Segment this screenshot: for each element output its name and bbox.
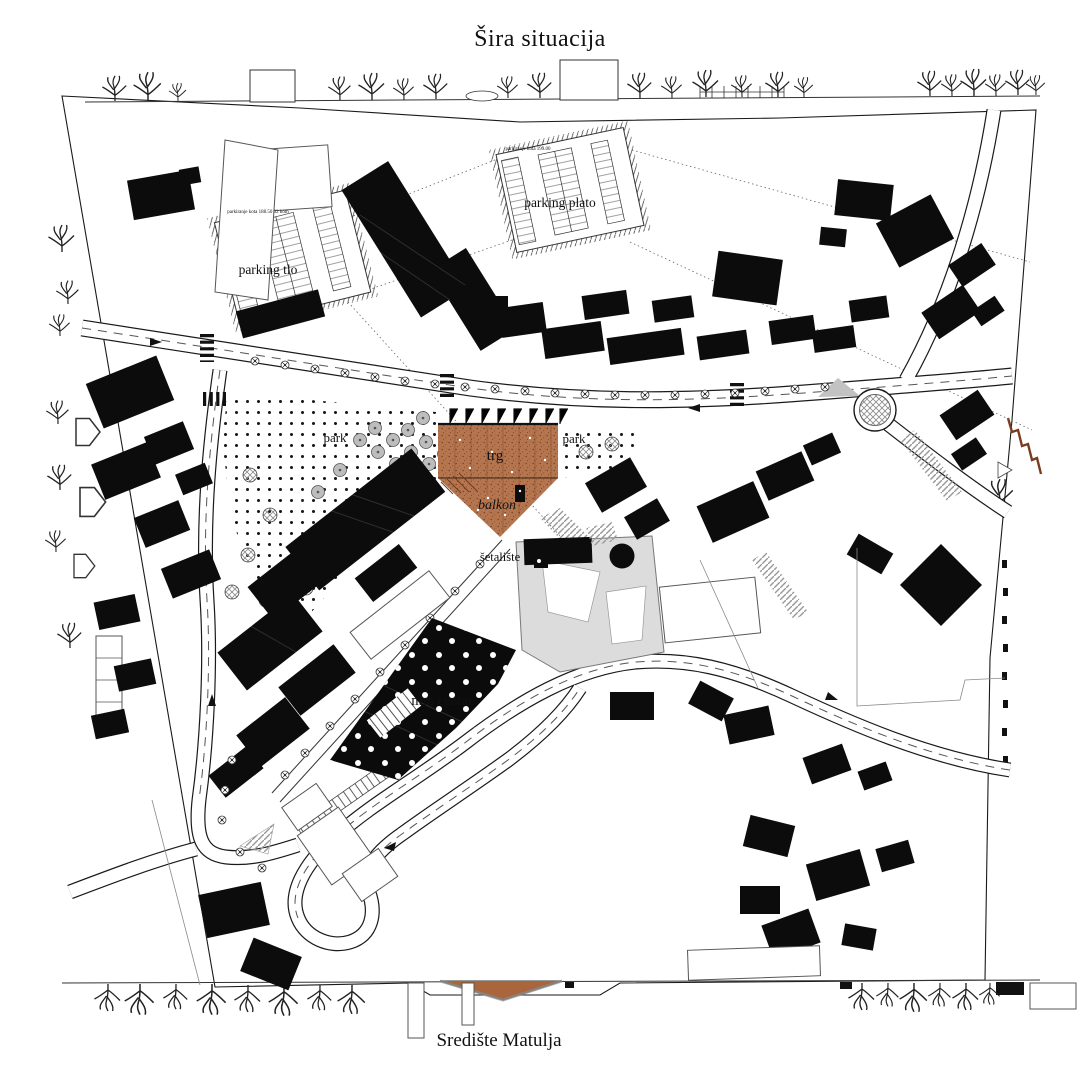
tree-icon (49, 225, 75, 252)
tree-icon (338, 985, 365, 1014)
top-elevation-strip (85, 60, 1045, 102)
tree-icon (1005, 70, 1029, 95)
label-parking-plato: parking plato (524, 195, 596, 210)
tree-icon (731, 75, 751, 97)
elevation-house (80, 488, 106, 517)
tree-icon (765, 72, 789, 97)
tree-icon (45, 530, 65, 552)
tree-icon (46, 401, 68, 424)
plaza-kiosk (515, 485, 525, 502)
note-parking-tlo: parkiranje kota 188.50 32 kom (227, 210, 289, 215)
label-park-right: park (562, 431, 586, 446)
tree-icon (627, 73, 651, 98)
label-parking-tlo: parking tlo (239, 262, 298, 277)
tree-icon (307, 985, 331, 1010)
label-mm-centar: mm centar (411, 693, 473, 709)
tree-icon (961, 69, 987, 96)
tree-icon (102, 76, 126, 101)
site-plan-sheet: Šira situacija Središte Matulja (0, 0, 1080, 1080)
label-park-left: park (323, 430, 347, 445)
tree-icon (693, 70, 719, 97)
roundabout (854, 389, 896, 431)
tree-icon (497, 76, 517, 98)
site-plan-drawing: parking plato parking tlo parkiranje kot… (0, 0, 1080, 1080)
tree-icon (1026, 75, 1045, 95)
tree-icon (163, 984, 187, 1009)
tree-icon (235, 985, 261, 1012)
tree-icon (95, 984, 121, 1011)
tree-icon (423, 74, 447, 99)
tree-icon (953, 983, 979, 1010)
tree-icon (928, 983, 950, 1006)
label-setaliste: šetalište (480, 550, 521, 564)
elevation-building (560, 60, 618, 100)
tree-icon (527, 73, 551, 98)
tree-icon (134, 72, 161, 101)
tree-icon (849, 983, 875, 1010)
note-parking-plato: parkiranje kota 199.00 (505, 147, 551, 152)
tree-icon (661, 76, 681, 98)
tree-icon (985, 74, 1005, 96)
elevation-house (76, 419, 100, 446)
elevation-building (250, 70, 295, 102)
tree-icon (328, 77, 350, 100)
tree-icon (876, 983, 898, 1006)
tree-icon (47, 465, 71, 490)
tree-icon (56, 281, 78, 304)
elevation-house (74, 554, 95, 577)
tree-icon (169, 83, 186, 101)
tree-icon (269, 985, 298, 1016)
tree-icon (794, 77, 813, 97)
label-balkon: balkon (478, 498, 516, 513)
tree-icon (359, 73, 385, 100)
tree-icon (900, 983, 927, 1012)
tree-icon (49, 314, 69, 336)
tree-icon (57, 623, 81, 648)
round-pavilion (610, 544, 635, 569)
tree-icon (941, 74, 961, 96)
school-building (516, 522, 664, 672)
tree-icon (393, 78, 413, 100)
tree-icon (125, 984, 154, 1015)
label-trg: trg (487, 448, 504, 464)
tree-icon (917, 71, 941, 96)
tree-icon (197, 984, 226, 1015)
